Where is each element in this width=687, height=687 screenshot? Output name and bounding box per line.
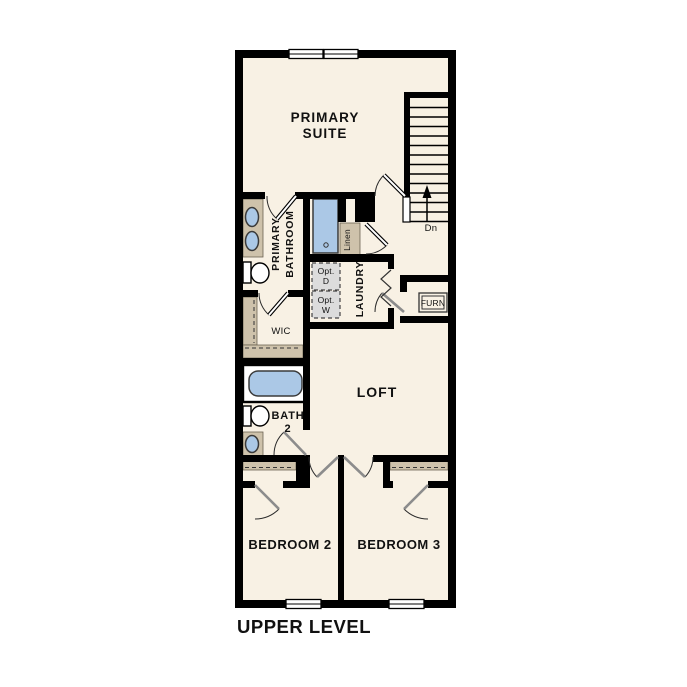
bedroom3-label: BEDROOM 3 [357,537,440,552]
opt-washer-label-line2: W [322,305,330,315]
primary-bathroom-label-line1: PRIMARY [270,217,282,271]
opt-washer-label-line1: Opt. [318,295,335,305]
bath2-sink [246,436,259,453]
primary-bathroom-label-line2: BATHROOM [284,210,296,277]
wall-laundry-right-lower [388,308,394,329]
floor-plan-drawing: PRIMARY SUITE PRIMARY BATHROOM Linen LAU… [0,0,687,687]
stairs-down-label: Dn [425,223,438,234]
window-bedroom2 [286,600,321,609]
wall-shower-column [338,192,346,222]
wall-corner-block [296,455,310,488]
linen-label: Linen [342,229,352,251]
wall-hall-block [355,192,375,222]
bathtub [249,371,302,396]
wall-stairs-left [404,92,410,197]
laundry-label: LAUNDRY [354,261,366,318]
primary-toilet-bowl [251,263,269,283]
wic-shelf-bottom [243,345,303,358]
wall-exterior-left [235,50,243,608]
bath2-toilet-tank [243,406,251,426]
wall-suite-bottom-left [235,192,265,199]
furnace-label: FURN [421,298,445,308]
wall-furnace-top [400,275,448,282]
bath2-label-line1: BATH [272,410,305,422]
wall-bedroom2-closet-b [283,481,296,488]
bedroom2-label: BEDROOM 2 [248,537,331,552]
opt-dryer-label-line1: Opt. [318,266,335,276]
wall-laundry-right-upper [388,254,394,269]
wall-bedroom3-closet-b [428,481,448,488]
window-top-double [289,50,358,59]
bath2-label-line2: 2 [285,423,292,435]
primary-toilet-tank [243,262,251,283]
wall-bathroom-wic-left [235,290,258,297]
primary-sink-1 [246,208,259,227]
window-bedroom3 [389,600,424,609]
wall-loft-bottom-left [235,455,296,462]
wall-bathroom-wic-right [288,290,310,297]
wall-bedroom-divider [338,455,344,608]
primary-suite-label-line2: SUITE [303,126,348,141]
wall-bedroom3-closet-a [383,481,393,488]
wic-label: WIC [271,326,290,337]
opt-dryer-label-line2: D [323,276,329,286]
bath2-toilet-bowl [251,406,269,426]
primary-suite-label-line1: PRIMARY [291,110,360,125]
room-primary-suite [243,58,404,192]
plan-title: UPPER LEVEL [237,616,371,637]
stairs-rail [403,197,410,222]
shower [313,199,338,253]
wall-furnace-bottom [400,316,448,323]
wall-bathroom-laundry [303,192,310,365]
wall-laundry-bottom [303,322,394,329]
wall-exterior-right [448,50,456,608]
loft-label: LOFT [357,384,398,400]
floor-plan-page: PRIMARY SUITE PRIMARY BATHROOM Linen LAU… [0,0,687,687]
wic-shelf-left [243,297,257,345]
wall-furnace-left-stub [400,275,407,292]
wall-bedroom2-closet-a [243,481,255,488]
primary-sink-2 [246,232,259,251]
wall-laundry-top [303,254,394,262]
wall-wic-bottom [235,358,310,365]
wall-stairs-top [404,92,448,98]
